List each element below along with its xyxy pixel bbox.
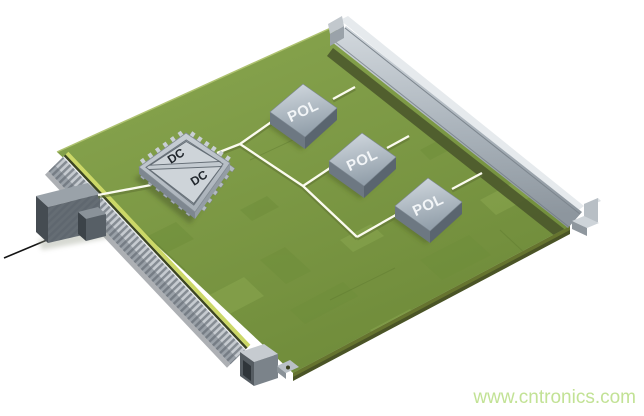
strip-end-block xyxy=(240,344,278,386)
watermark-text: www.cntronics.com xyxy=(472,387,636,408)
pcb-3d-illustration: DC DC POL POL POL ww xyxy=(0,0,644,416)
illustration-stage: DC DC POL POL POL ww xyxy=(0,0,644,416)
